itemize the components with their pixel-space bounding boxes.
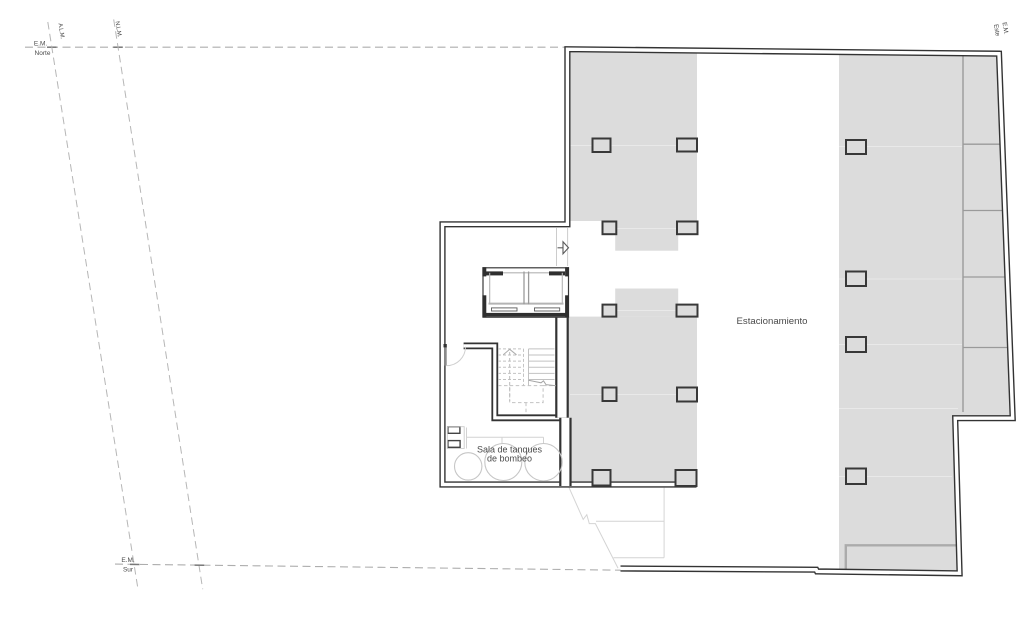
- svg-text:Estacionamiento: Estacionamiento: [737, 316, 808, 327]
- svg-text:A.L.M.: A.L.M.: [57, 23, 65, 40]
- svg-text:E.M.: E.M.: [34, 40, 48, 47]
- svg-text:de bombeo: de bombeo: [487, 454, 532, 464]
- svg-text:N.L.M.: N.L.M.: [114, 21, 123, 38]
- svg-text:E.M.: E.M.: [1001, 22, 1010, 36]
- svg-text:Este: Este: [992, 24, 1001, 37]
- svg-text:Sur: Sur: [123, 567, 134, 574]
- svg-text:E.M.: E.M.: [121, 557, 135, 564]
- svg-text:Norte: Norte: [35, 50, 51, 57]
